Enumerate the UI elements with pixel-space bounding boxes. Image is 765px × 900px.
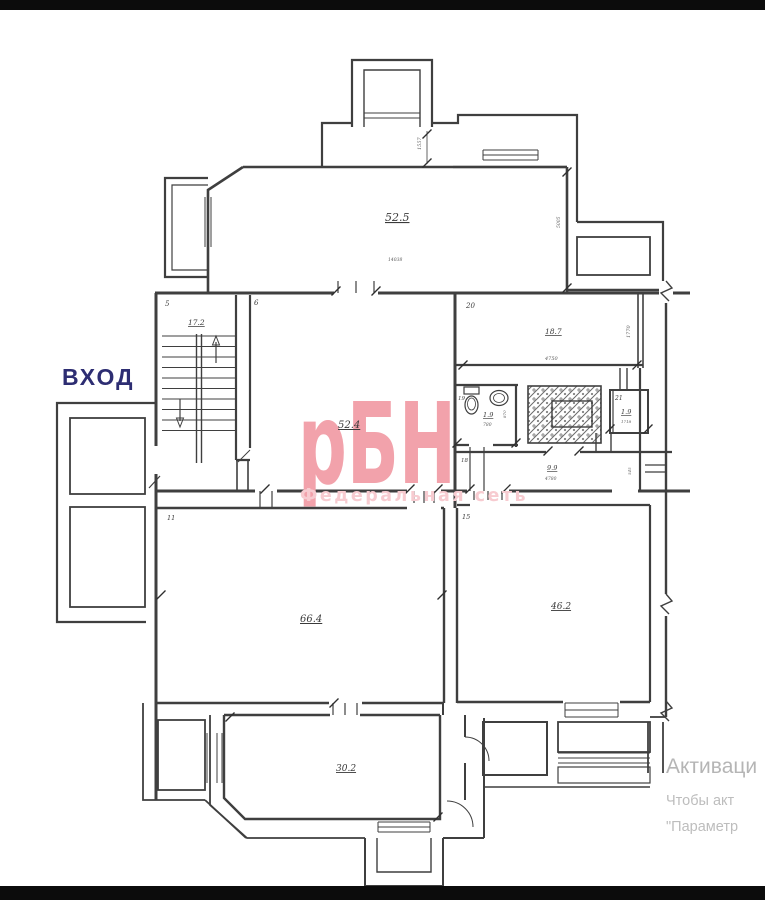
toilet-tank-icon bbox=[464, 387, 479, 394]
room-52-5-walls bbox=[208, 167, 567, 293]
door-arc bbox=[465, 737, 489, 761]
porch-bottom-right bbox=[483, 722, 663, 787]
room-52-5-area: 52.5 bbox=[385, 211, 410, 224]
room-15-number: 15 bbox=[462, 513, 470, 521]
top-right-annex bbox=[567, 222, 672, 290]
room-20-width: 4750 bbox=[544, 356, 559, 362]
window-room302 bbox=[217, 733, 222, 783]
window-vestibule bbox=[378, 822, 430, 832]
room-18-number: 18 bbox=[461, 458, 468, 464]
dim-main-width: 14038 bbox=[388, 257, 402, 263]
bottom-vestibule bbox=[365, 822, 443, 886]
top-left-protrusion bbox=[165, 178, 211, 277]
outer-right-wall bbox=[650, 281, 673, 721]
room-21-area: 1.9 bbox=[621, 408, 631, 416]
sink-icon bbox=[490, 391, 508, 406]
room-19-height: 870 bbox=[502, 410, 507, 418]
activation-line2: Чтобы акт bbox=[666, 793, 765, 809]
door-arc bbox=[447, 801, 473, 827]
right-corridor bbox=[640, 368, 667, 491]
room-6-number: 6 bbox=[254, 299, 259, 307]
room-20-height: 1770 bbox=[626, 324, 632, 338]
toilet-icon bbox=[465, 396, 478, 414]
stair-stringer bbox=[197, 334, 202, 463]
floor-plan-svg: рБН Федеральная сеть 52.5 14038 1557 500… bbox=[0, 0, 765, 900]
room-20-number: 20 bbox=[465, 302, 475, 310]
letterbox-bottom bbox=[0, 886, 765, 900]
windows-activation-watermark: Активаци Чтобы акт "Параметр bbox=[666, 755, 765, 845]
room-20-walls bbox=[455, 293, 643, 390]
dim-right-height: 5005 bbox=[556, 216, 562, 228]
dim-recess: 1557 bbox=[417, 136, 423, 150]
screenshot-stage: рБН Федеральная сеть 52.5 14038 1557 500… bbox=[0, 0, 765, 900]
room-6-area: 52.4 bbox=[338, 420, 360, 431]
porch-bottom-left bbox=[143, 703, 246, 838]
room-21-number: 21 bbox=[614, 395, 623, 402]
room-19-width: 780 bbox=[483, 422, 492, 428]
stair-treads bbox=[162, 336, 235, 431]
room-11-area: 66.4 bbox=[300, 614, 322, 625]
room-19-area: 1.9 bbox=[483, 411, 493, 419]
room-302-area: 30.2 bbox=[336, 764, 356, 774]
room-5-area: 17.2 bbox=[188, 318, 205, 327]
room-15-area: 46.2 bbox=[550, 602, 571, 612]
room-19-number: 19 bbox=[458, 396, 465, 402]
room-18-height: 545 bbox=[627, 467, 632, 475]
window-top-right bbox=[483, 150, 538, 160]
top-vestibule bbox=[352, 60, 432, 127]
ventilation-shaft bbox=[528, 386, 601, 443]
activation-line1: Активаци bbox=[666, 755, 765, 779]
activation-line3: "Параметр bbox=[666, 819, 765, 835]
entrance-label: ВХОД bbox=[62, 364, 134, 391]
room-18-width: 4780 bbox=[544, 476, 557, 482]
entrance-porch-left bbox=[57, 403, 156, 622]
room-18-area: 9.9 bbox=[547, 464, 557, 472]
room-11-number: 11 bbox=[167, 514, 175, 522]
room-20-area: 18.7 bbox=[545, 327, 562, 336]
stairwell bbox=[162, 295, 250, 491]
room-21-width: 1718 bbox=[621, 419, 632, 424]
center-spine-wall bbox=[444, 508, 457, 703]
room-302-walls bbox=[210, 715, 440, 838]
room-5-number: 5 bbox=[165, 300, 170, 308]
watermark-subtitle: Федеральная сеть bbox=[300, 486, 528, 506]
